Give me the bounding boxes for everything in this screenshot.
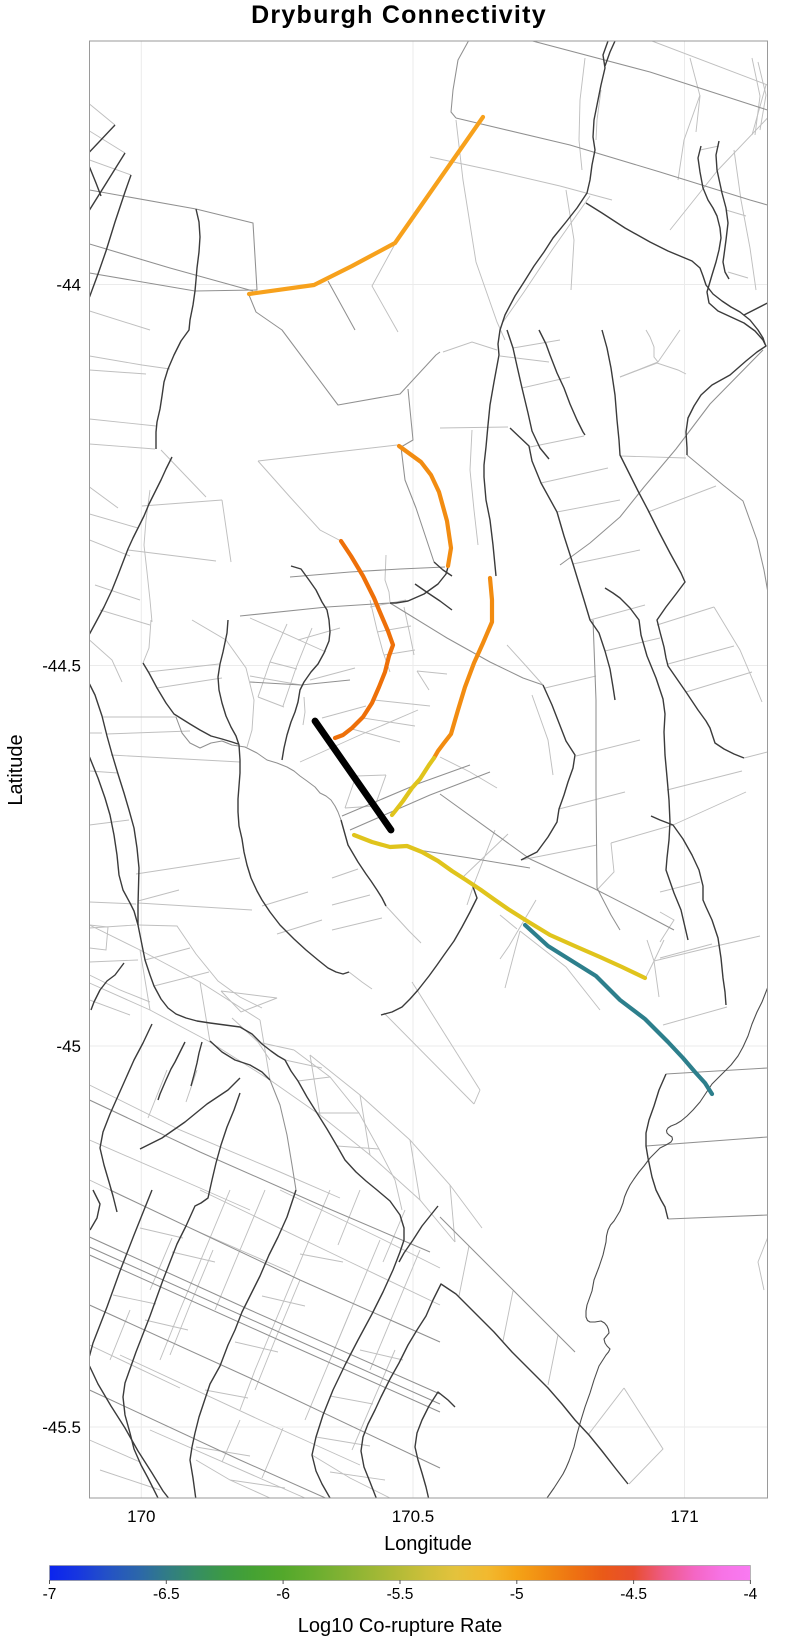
svg-text:171: 171 [670, 1507, 698, 1526]
svg-text:-4: -4 [744, 1586, 758, 1603]
svg-text:-44.5: -44.5 [42, 657, 81, 676]
svg-text:Dryburgh Connectivity: Dryburgh Connectivity [251, 1, 547, 29]
svg-text:-6: -6 [276, 1586, 290, 1603]
svg-text:-44: -44 [56, 276, 81, 295]
svg-text:-5.5: -5.5 [387, 1586, 414, 1603]
svg-text:Longitude: Longitude [384, 1533, 472, 1555]
svg-text:170: 170 [127, 1507, 155, 1526]
svg-text:170.5: 170.5 [392, 1507, 435, 1526]
svg-text:Latitude: Latitude [5, 734, 27, 805]
svg-text:-5: -5 [510, 1586, 524, 1603]
svg-text:Log10 Co-rupture Rate: Log10 Co-rupture Rate [298, 1615, 503, 1637]
svg-text:-6.5: -6.5 [153, 1586, 180, 1603]
svg-text:-4.5: -4.5 [620, 1586, 647, 1603]
svg-text:-45: -45 [56, 1037, 81, 1056]
svg-text:-45.5: -45.5 [42, 1418, 81, 1437]
svg-text:-7: -7 [43, 1586, 57, 1603]
